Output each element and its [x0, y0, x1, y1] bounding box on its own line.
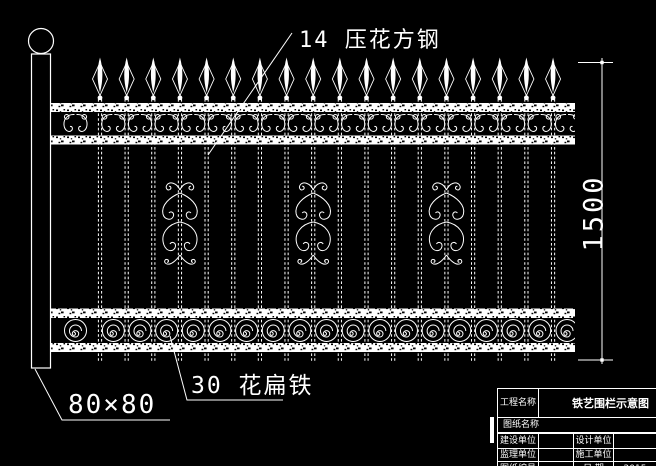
- post-size-annotation: 80×80: [68, 390, 156, 420]
- cad-viewport: 14 压花方钢 30 花扁铁 80×80 1500 工程名称 铁艺围栏示意图 图…: [0, 0, 656, 466]
- bottom-band-annotation: 30 花扁铁: [191, 366, 314, 400]
- titleblock-project-label: 工程名称: [498, 389, 539, 417]
- titleblock-row-drawing-name: 图纸名称: [498, 418, 656, 434]
- titleblock-row-build: 建设单位 设计单位: [498, 434, 656, 449]
- titleblock-build-label: 建设单位: [498, 434, 539, 448]
- titleblock-date-label: 日 期: [574, 462, 614, 466]
- titleblock-row-project: 工程名称 铁艺围栏示意图: [498, 389, 656, 418]
- titleblock-number-label: 图纸编号: [498, 462, 539, 466]
- height-dimension-text: 1500: [579, 174, 610, 251]
- titleblock-design-value: [614, 434, 656, 448]
- titleblock-drawing-name-label: 图纸名称: [498, 418, 656, 432]
- titleblock-build-value: [539, 434, 574, 448]
- titleblock-row-supervise: 监理单位 施工单位: [498, 449, 656, 462]
- selection-grip: [490, 417, 494, 443]
- titleblock-supervise-label: 监理单位: [498, 449, 539, 461]
- title-block: 工程名称 铁艺围栏示意图 图纸名称 建设单位 设计单位 监理单位 施工单位 图纸…: [497, 388, 656, 466]
- top-bar-annotation: 14 压花方钢: [299, 22, 441, 54]
- titleblock-construct-label: 施工单位: [574, 449, 614, 461]
- titleblock-project-value: 铁艺围栏示意图: [539, 389, 656, 417]
- titleblock-design-label: 设计单位: [574, 434, 614, 448]
- titleblock-number-value: [539, 462, 574, 466]
- titleblock-construct-value: [614, 449, 656, 461]
- titleblock-supervise-value: [539, 449, 574, 461]
- titleblock-date-value: 2015: [614, 462, 656, 466]
- titleblock-row-number: 图纸编号 日 期 2015: [498, 462, 656, 466]
